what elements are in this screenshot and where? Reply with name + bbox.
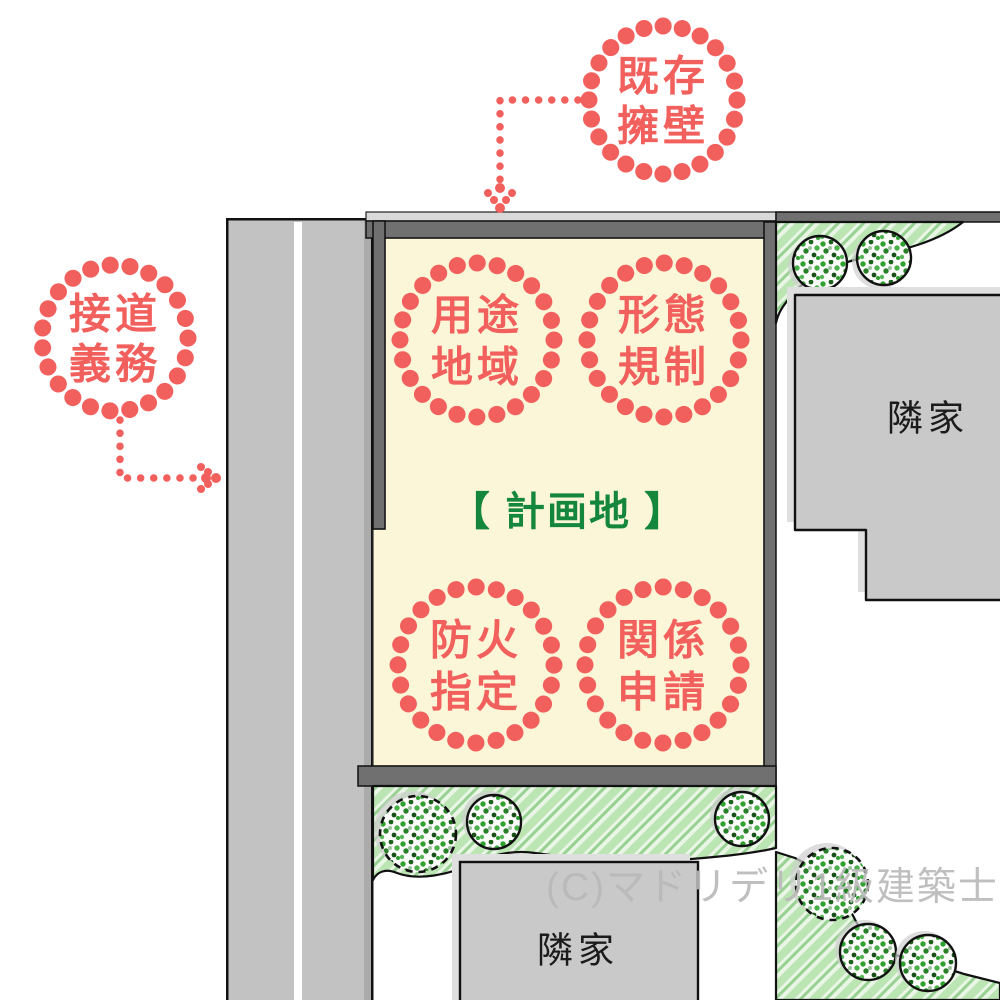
arrowhead-right <box>197 463 221 493</box>
callout-existing-wall: 既存 擁壁 <box>589 26 737 174</box>
wall-left-strip <box>373 221 385 529</box>
dotted-arrow-line <box>120 420 204 478</box>
callout-existing-wall-line1: 既存 <box>617 53 709 100</box>
site-title: 【 計画地 】 <box>450 490 686 534</box>
neighbor-building-right: 隣家 <box>787 287 1000 600</box>
road <box>226 218 374 1000</box>
bush <box>793 236 847 290</box>
bush <box>900 935 956 991</box>
wall-thin-band-right <box>776 212 1000 222</box>
bush <box>467 795 521 849</box>
road-lane-line <box>294 222 302 1000</box>
building-body <box>795 295 1000 600</box>
wall-bottom-band <box>358 766 776 786</box>
callout-road-duty-line2: 義務 <box>69 341 161 388</box>
road-left-outline <box>226 218 229 1000</box>
site-plan-canvas: 隣家 隣家 【 計画地 】 既存 擁壁 接道 義務 <box>0 0 1000 1000</box>
copyright-watermark: (C)マドリデリ1級建築士事務所 <box>546 866 1000 909</box>
callout-fire-designation-line1: 防火 <box>430 617 522 664</box>
callout-form-regulation-line2: 規制 <box>618 344 710 391</box>
callout-related-application-line1: 関係 <box>617 617 709 664</box>
road-top-outline <box>226 218 373 221</box>
neighbor-right-label: 隣家 <box>887 398 969 439</box>
callout-existing-wall-line2: 擁壁 <box>617 103 709 150</box>
callout-use-district-line1: 用途 <box>431 292 523 339</box>
callout-fire-designation-line2: 指定 <box>430 669 522 716</box>
callout-related-application-line2: 申請 <box>617 669 709 716</box>
wall-top-surface <box>366 212 776 221</box>
arrow-existing-wall <box>484 100 578 213</box>
road-edge-band <box>364 218 371 1000</box>
arrow-road-duty <box>120 420 221 493</box>
bush <box>840 924 896 980</box>
dotted-arrow-line <box>500 100 578 186</box>
dotted-ring <box>42 265 188 411</box>
dotted-ring <box>589 26 737 174</box>
site-plan-diagram: 隣家 隣家 【 計画地 】 既存 擁壁 接道 義務 <box>0 0 1000 1000</box>
wall-top-band <box>366 221 776 238</box>
callout-road-duty: 接道 義務 <box>42 265 188 411</box>
arrowhead-down <box>484 183 516 213</box>
callout-road-duty-line1: 接道 <box>69 291 161 338</box>
wall-right-strip <box>764 222 776 786</box>
callout-form-regulation-line1: 形態 <box>618 292 710 339</box>
bush <box>715 792 769 846</box>
callout-use-district-line2: 地域 <box>431 344 523 391</box>
bush <box>857 231 911 285</box>
neighbor-bottom-label: 隣家 <box>537 930 619 971</box>
bush-dashed <box>380 796 456 872</box>
